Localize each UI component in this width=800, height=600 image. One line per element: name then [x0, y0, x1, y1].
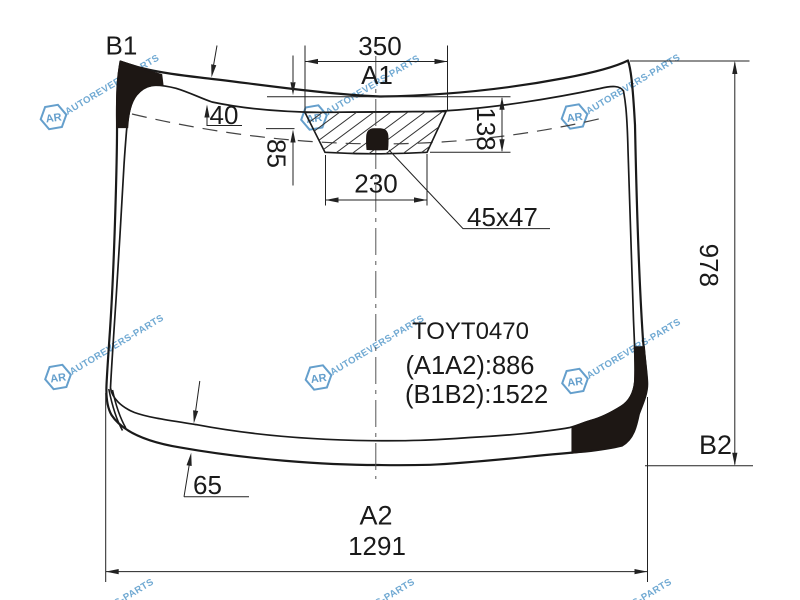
svg-text:A2: A2 [359, 501, 392, 531]
svg-text:TOYT0470: TOYT0470 [412, 318, 529, 345]
svg-text:B1: B1 [106, 31, 138, 61]
svg-text:85: 85 [262, 139, 292, 168]
svg-text:AUTOREVERS-PARTS: AUTOREVERS-PARTS [576, 576, 674, 600]
svg-text:B2: B2 [699, 430, 732, 460]
svg-text:(B1B2):1522: (B1B2):1522 [405, 381, 548, 409]
svg-text:A1: A1 [361, 60, 393, 90]
svg-text:65: 65 [193, 470, 222, 500]
svg-text:AR: AR [566, 111, 583, 125]
svg-text:AUTOREVERS-PARTS: AUTOREVERS-PARTS [58, 576, 156, 600]
svg-text:AR: AR [50, 371, 67, 385]
svg-text:(A1A2):886: (A1A2):886 [406, 352, 535, 380]
svg-text:AR: AR [567, 375, 584, 389]
svg-text:40: 40 [210, 100, 239, 130]
svg-text:AR: AR [310, 372, 327, 386]
svg-text:AUTOREVERS-PARTS: AUTOREVERS-PARTS [319, 576, 417, 600]
svg-text:138: 138 [471, 107, 501, 150]
svg-text:1291: 1291 [348, 531, 406, 561]
svg-text:230: 230 [354, 169, 397, 199]
svg-text:45x47: 45x47 [467, 202, 538, 232]
svg-text:AR: AR [45, 111, 62, 125]
svg-text:350: 350 [358, 31, 401, 61]
svg-text:978: 978 [694, 244, 724, 287]
